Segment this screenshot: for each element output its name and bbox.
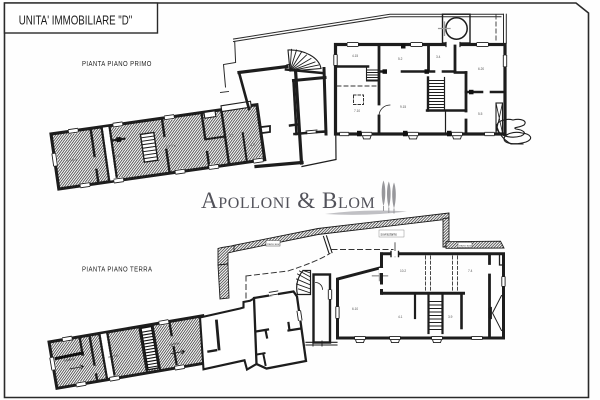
svg-text:PIANTA PIANO PRIMO: PIANTA PIANO PRIMO (82, 60, 152, 68)
svg-text:3.9: 3.9 (448, 315, 453, 319)
svg-text:6.20: 6.20 (478, 67, 484, 71)
svg-text:5.2: 5.2 (398, 57, 403, 61)
svg-text:sovrastante: sovrastante (381, 232, 398, 236)
svg-text:7.4: 7.4 (468, 269, 473, 273)
svg-text:3.1: 3.1 (229, 133, 234, 138)
svg-text:3.4: 3.4 (436, 55, 441, 59)
svg-text:5.5: 5.5 (478, 112, 483, 116)
svg-text:4.15: 4.15 (352, 54, 358, 58)
svg-text:4.1: 4.1 (398, 315, 403, 319)
svg-text:10.2: 10.2 (400, 269, 406, 273)
svg-text:9.15: 9.15 (400, 105, 406, 109)
svg-text:6.10: 6.10 (352, 307, 358, 311)
svg-text:Apolloni & Blom: Apolloni & Blom (201, 188, 375, 213)
svg-text:muro sov.: muro sov. (267, 242, 280, 246)
svg-text:UNITA' IMMOBILIARE "D": UNITA' IMMOBILIARE "D" (19, 14, 132, 27)
svg-text:muro sov.: muro sov. (459, 243, 472, 247)
svg-text:PIANTA PIANO TERRA: PIANTA PIANO TERRA (82, 266, 152, 274)
svg-text:1.8: 1.8 (250, 142, 255, 147)
svg-text:7.10: 7.10 (354, 109, 360, 113)
